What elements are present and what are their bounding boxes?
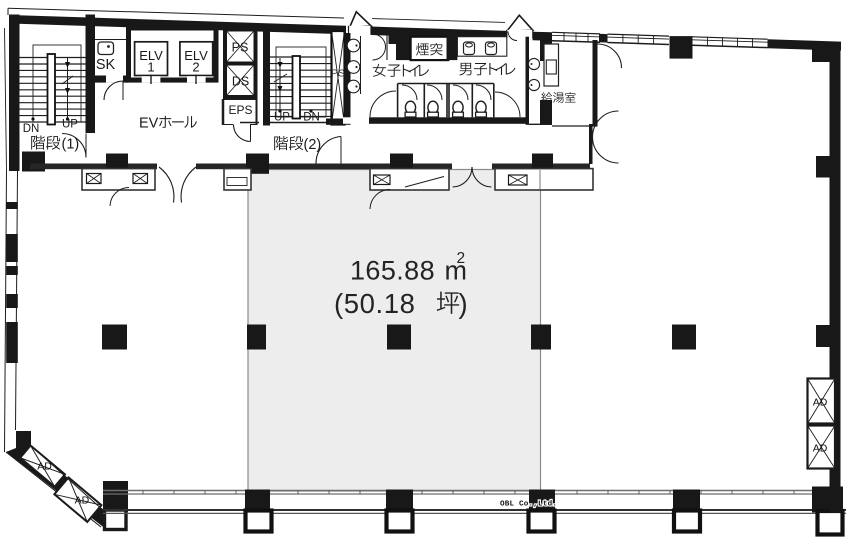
svg-text:UP: UP <box>274 112 290 124</box>
svg-text:UP: UP <box>62 119 78 131</box>
svg-text:EPS: EPS <box>228 103 252 117</box>
svg-text:EV: EV <box>139 116 159 132</box>
svg-text:OBL Co.,Ltd.: OBL Co.,Ltd. <box>500 501 557 509</box>
svg-text:AD: AD <box>813 443 828 455</box>
svg-text:2: 2 <box>192 60 199 75</box>
svg-text:SK: SK <box>96 57 116 73</box>
svg-text:PS: PS <box>331 68 345 80</box>
svg-text:AD: AD <box>813 397 828 409</box>
svg-text:DN: DN <box>303 112 320 124</box>
svg-text:2: 2 <box>457 250 466 267</box>
svg-text:AD: AD <box>37 461 52 473</box>
svg-text:165.88: 165.88 <box>350 256 435 286</box>
svg-text:1: 1 <box>147 60 154 75</box>
svg-text:DN: DN <box>23 123 40 135</box>
svg-text:PS: PS <box>232 41 249 55</box>
svg-text:AD: AD <box>75 495 90 507</box>
svg-text:(50.18: (50.18 <box>334 288 416 319</box>
svg-text:): ) <box>459 288 468 319</box>
svg-text:DS: DS <box>232 75 249 89</box>
